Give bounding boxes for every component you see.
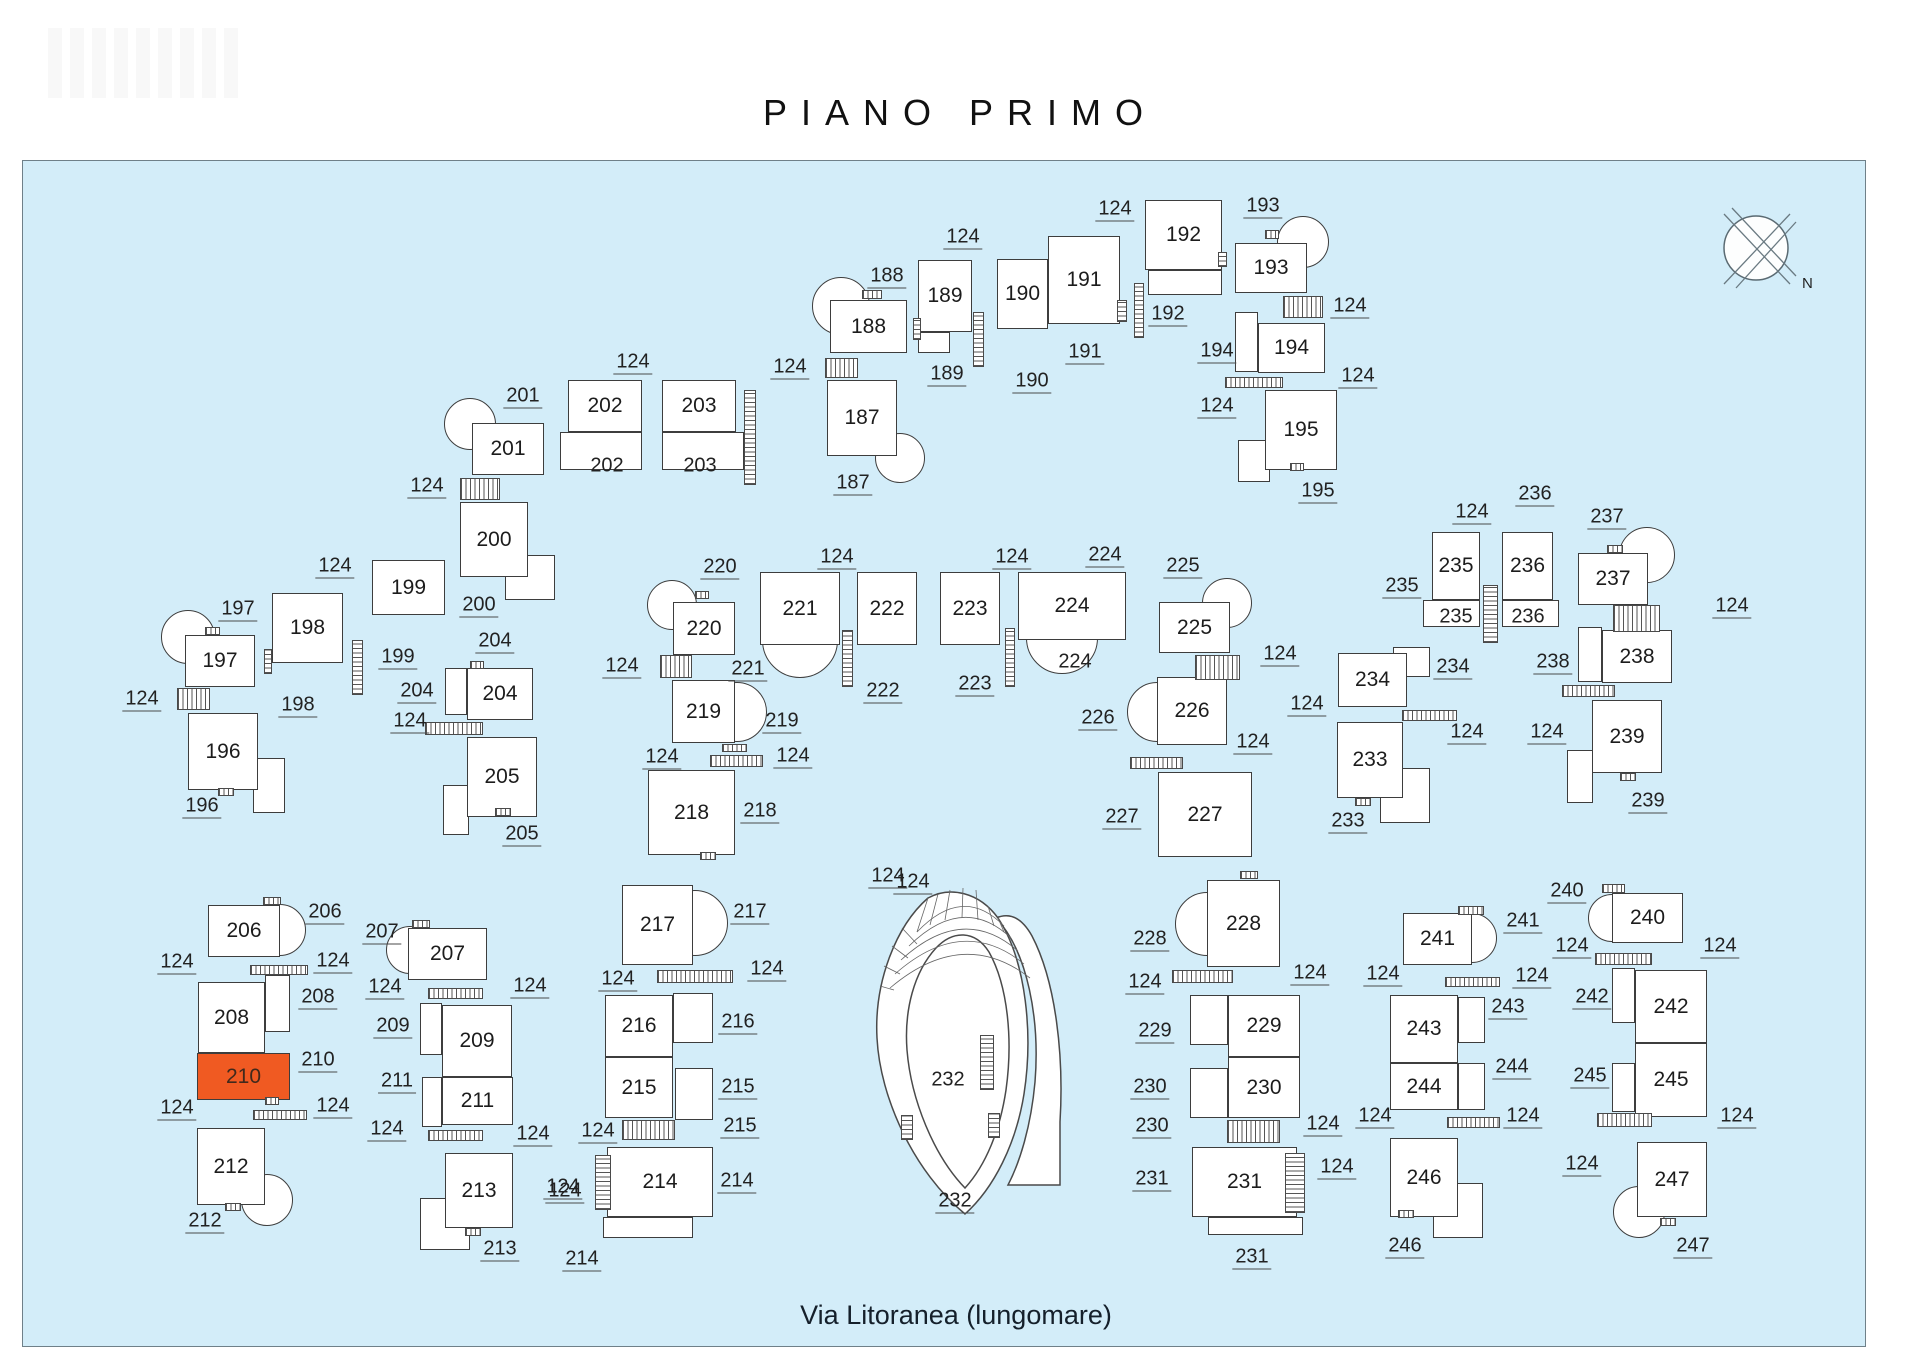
room-annex (673, 993, 713, 1043)
plan-label-124: 124 (1512, 966, 1551, 989)
unit-194[interactable]: 194 (1258, 323, 1325, 373)
stairs-hatch (1458, 906, 1484, 915)
unit-208[interactable]: 208 (198, 982, 265, 1053)
stairs-hatch (1398, 1210, 1414, 1218)
unit-number: 234 (1355, 668, 1390, 692)
unit-number: 224 (1054, 594, 1089, 618)
plan-label-244: 244 (1492, 1057, 1531, 1080)
unit-202[interactable]: 202 (568, 380, 642, 432)
room-annex (1612, 1063, 1635, 1112)
unit-241[interactable]: 241 (1403, 913, 1472, 965)
room-annex (422, 1077, 442, 1127)
plan-label-124: 124 (315, 556, 354, 579)
unit-246[interactable]: 246 (1390, 1138, 1458, 1217)
plan-label-124: 124 (598, 969, 637, 992)
plan-label-124: 124 (1712, 596, 1751, 619)
room-annex (1458, 997, 1485, 1043)
plan-label-213: 213 (480, 1239, 519, 1262)
plan-label-223: 223 (955, 674, 994, 697)
unit-number: 223 (952, 597, 987, 621)
unit-230[interactable]: 230 (1228, 1057, 1300, 1118)
unit-233[interactable]: 233 (1337, 722, 1403, 798)
unit-number: 238 (1619, 645, 1654, 669)
stairs-hatch (988, 1113, 1000, 1138)
stairs-hatch (428, 1130, 483, 1141)
unit-213[interactable]: 213 (445, 1153, 513, 1228)
room-annex (1578, 627, 1602, 682)
stairs-hatch (1562, 685, 1615, 697)
unit-number: 187 (844, 406, 879, 430)
unit-number: 217 (640, 913, 675, 937)
unit-196[interactable]: 196 (188, 713, 258, 790)
stairs-hatch (205, 627, 220, 635)
plan-label-198: 198 (278, 695, 317, 718)
plan-label-124: 124 (992, 547, 1031, 570)
room-annex (445, 668, 467, 715)
stairs-hatch (695, 591, 709, 599)
room-annex (265, 975, 290, 1032)
unit-189[interactable]: 189 (918, 260, 972, 332)
plan-label-238: 238 (1533, 652, 1572, 675)
unit-247[interactable]: 247 (1637, 1142, 1707, 1217)
plan-label-231: 231 (1232, 1247, 1271, 1270)
plan-label-210: 210 (298, 1050, 337, 1073)
plan-label-195: 195 (1298, 481, 1337, 504)
plan-label-230: 230 (1130, 1077, 1169, 1100)
unit-224[interactable]: 224 (1018, 572, 1126, 640)
unit-number: 235 (1438, 554, 1473, 578)
unit-205[interactable]: 205 (467, 737, 537, 817)
plan-label-194: 194 (1197, 341, 1236, 364)
stairs-hatch (825, 358, 858, 378)
plan-label-124: 124 (407, 476, 446, 499)
unit-225[interactable]: 225 (1159, 602, 1230, 653)
plan-label-124: 124 (1717, 1106, 1756, 1129)
unit-204[interactable]: 204 (467, 668, 533, 720)
unit-219[interactable]: 219 (672, 680, 735, 743)
room-annex (1458, 1063, 1485, 1110)
plan-label-124: 124 (390, 711, 429, 734)
plan-label-232: 232 (931, 1070, 964, 1091)
stairs-hatch (1602, 884, 1625, 893)
compass-north-label: N (1802, 275, 1813, 292)
unit-206[interactable]: 206 (208, 905, 280, 957)
unit-number: 211 (461, 1089, 494, 1113)
plan-label-231: 231 (1132, 1169, 1171, 1192)
plan-label-215: 215 (718, 1077, 757, 1100)
unit-214[interactable]: 214 (607, 1147, 713, 1217)
stairs-hatch (253, 1110, 307, 1120)
plan-label-207: 207 (362, 922, 401, 945)
stairs-hatch (1117, 300, 1127, 322)
stairs-hatch (1595, 953, 1652, 965)
plan-label-124: 124 (1562, 1154, 1601, 1177)
stairs-hatch (1447, 1117, 1500, 1128)
plan-label-124: 124 (1452, 502, 1491, 525)
unit-number: 188 (851, 315, 886, 339)
unit-number: 226 (1174, 699, 1209, 723)
plan-label-245: 245 (1570, 1066, 1609, 1089)
plan-label-200: 200 (459, 595, 498, 618)
plan-label-209: 209 (373, 1016, 412, 1039)
unit-229[interactable]: 229 (1228, 995, 1300, 1057)
plan-label-215: 215 (720, 1116, 759, 1139)
stairs-hatch (352, 640, 363, 695)
plan-label-196: 196 (182, 796, 221, 819)
plan-label-188: 188 (867, 266, 906, 289)
unit-243[interactable]: 243 (1390, 995, 1458, 1063)
unit-number: 220 (686, 617, 721, 641)
unit-222[interactable]: 222 (857, 572, 917, 645)
stairs-hatch (1597, 1113, 1652, 1127)
plan-label-235: 235 (1382, 576, 1421, 599)
plan-label-206: 206 (305, 902, 344, 925)
stairs-hatch (1225, 377, 1283, 388)
plan-label-124: 124 (1197, 396, 1236, 419)
stairs-hatch (1240, 871, 1258, 879)
stairs-hatch (1227, 1120, 1280, 1143)
stairs-hatch (1172, 970, 1233, 983)
stairs-hatch (980, 1035, 994, 1090)
unit-number: 246 (1406, 1166, 1441, 1190)
unit-number: 189 (927, 284, 962, 308)
stairs-hatch (660, 655, 692, 678)
plan-label-124: 124 (1338, 366, 1377, 389)
unit-number: 242 (1653, 995, 1688, 1019)
unit-235[interactable]: 235 (1432, 532, 1480, 600)
plan-label-243: 243 (1488, 997, 1527, 1020)
unit-number: 227 (1187, 803, 1222, 827)
stairs-hatch (1005, 628, 1015, 687)
plan-label-220: 220 (700, 557, 739, 580)
unit-221[interactable]: 221 (760, 572, 840, 645)
plan-label-217: 217 (730, 902, 769, 925)
stairs-hatch (263, 897, 281, 905)
plan-label-237: 237 (1587, 507, 1626, 530)
stairs-hatch (1355, 798, 1371, 806)
plan-label-235: 235 (1439, 607, 1472, 628)
plan-label-222: 222 (863, 681, 902, 704)
plan-label-199: 199 (378, 647, 417, 670)
unit-197[interactable]: 197 (185, 635, 255, 687)
unit-201[interactable]: 201 (472, 423, 544, 475)
unit-number: 207 (430, 942, 465, 966)
room-annex (918, 332, 950, 353)
unit-191[interactable]: 191 (1048, 236, 1120, 324)
unit-209[interactable]: 209 (442, 1005, 512, 1077)
unit-198[interactable]: 198 (272, 593, 343, 663)
unit-195[interactable]: 195 (1265, 390, 1337, 470)
unit-210[interactable]: 210 (197, 1053, 290, 1100)
room-annex (1208, 1217, 1303, 1235)
plan-label-224: 224 (1085, 545, 1124, 568)
plan-label-124: 124 (578, 1121, 617, 1144)
plan-label-124: 124 (1700, 936, 1739, 959)
stairs-hatch (1483, 585, 1498, 643)
unit-number: 198 (290, 616, 325, 640)
unit-number: 240 (1630, 906, 1665, 930)
plan-label-205: 205 (502, 824, 541, 847)
plan-label-124: 124 (613, 352, 652, 375)
plan-label-227: 227 (1102, 807, 1141, 830)
stairs-hatch (1218, 252, 1227, 267)
stairs-hatch (700, 852, 716, 860)
stairs-hatch (177, 688, 210, 710)
room-annex (1190, 995, 1228, 1045)
stairs-hatch (1402, 710, 1457, 721)
stairs-hatch (412, 920, 430, 928)
unit-228[interactable]: 228 (1207, 880, 1280, 967)
plan-label-201: 201 (503, 386, 542, 409)
unit-number: 213 (461, 1179, 496, 1203)
unit-number: 197 (202, 649, 237, 673)
stairs-hatch (460, 478, 500, 500)
unit-215[interactable]: 215 (605, 1057, 673, 1118)
plan-label-124: 124 (513, 1124, 552, 1147)
unit-number: 208 (214, 1006, 249, 1030)
plan-label-124: 124 (1330, 296, 1369, 319)
unit-217[interactable]: 217 (622, 885, 693, 965)
plan-label-216: 216 (718, 1012, 757, 1035)
plan-label-124: 124 (893, 872, 932, 895)
unit-number: 205 (484, 765, 519, 789)
plan-label-124: 124 (367, 1119, 406, 1142)
plan-label-124: 124 (157, 952, 196, 975)
unit-number: 243 (1406, 1017, 1441, 1041)
floor-plan-page: PIANO PRIMO 2012002022031881871891901911… (0, 0, 1920, 1358)
stairs-hatch (1290, 463, 1304, 471)
plan-label-242: 242 (1572, 987, 1611, 1010)
plan-label-239: 239 (1628, 791, 1667, 814)
plan-label-124: 124 (1303, 1114, 1342, 1137)
plan-label-124: 124 (1527, 722, 1566, 745)
stairs-hatch (913, 318, 921, 340)
stairs-hatch (1660, 1218, 1676, 1226)
stairs-hatch (722, 744, 747, 752)
unit-212[interactable]: 212 (197, 1128, 265, 1205)
unit-number: 192 (1166, 223, 1201, 247)
unit-220[interactable]: 220 (673, 602, 735, 655)
unit-number: 233 (1352, 748, 1387, 772)
unit-234[interactable]: 234 (1338, 653, 1407, 707)
plan-label-232: 232 (935, 1191, 974, 1214)
unit-number: 200 (476, 528, 511, 552)
plan-label-124: 124 (313, 951, 352, 974)
unit-245[interactable]: 245 (1635, 1043, 1707, 1117)
stairs-hatch (1613, 605, 1660, 632)
unit-242[interactable]: 242 (1635, 970, 1707, 1043)
unit-number: 222 (869, 597, 904, 621)
stairs-hatch (744, 390, 756, 485)
unit-number: 239 (1609, 725, 1644, 749)
plan-label-124: 124 (1095, 199, 1134, 222)
plan-label-124: 124 (747, 959, 786, 982)
room-annex (1567, 750, 1593, 803)
unit-188[interactable]: 188 (830, 300, 907, 353)
room-annex (1148, 270, 1222, 295)
stairs-hatch (465, 1228, 481, 1236)
plan-label-211: 211 (378, 1071, 416, 1094)
stairs-hatch (495, 808, 511, 816)
plan-label-224: 224 (1058, 652, 1091, 673)
unit-number: 245 (1653, 1068, 1688, 1092)
unit-number: 209 (459, 1029, 494, 1053)
plan-label-202: 202 (590, 456, 623, 477)
unit-number: 215 (621, 1076, 656, 1100)
unit-number: 196 (205, 740, 240, 764)
unit-number: 201 (490, 437, 525, 461)
unit-227[interactable]: 227 (1158, 772, 1252, 857)
unit-187[interactable]: 187 (827, 380, 897, 456)
room-annex (675, 1068, 713, 1120)
stairs-hatch (710, 755, 763, 767)
unit-216[interactable]: 216 (605, 995, 673, 1057)
unit-number: 193 (1253, 256, 1288, 280)
unit-190[interactable]: 190 (997, 259, 1048, 329)
plan-label-225: 225 (1163, 556, 1202, 579)
plan-label-241: 241 (1503, 911, 1542, 934)
stairs-hatch (657, 970, 733, 983)
stairs-hatch (862, 290, 882, 299)
unit-244[interactable]: 244 (1390, 1063, 1458, 1110)
unit-211[interactable]: 211 (442, 1077, 513, 1125)
unit-number: 219 (686, 700, 721, 724)
unit-number: 221 (782, 597, 817, 621)
plan-label-124: 124 (1125, 972, 1164, 995)
stairs-hatch (1285, 1153, 1305, 1213)
unit-236[interactable]: 236 (1502, 532, 1553, 600)
plan-label-124: 124 (1233, 732, 1272, 755)
stairs-hatch (622, 1120, 675, 1140)
plan-label-124: 124 (1503, 1106, 1542, 1129)
plan-label-124: 124 (510, 976, 549, 999)
stairs-hatch (1195, 655, 1240, 680)
unit-231[interactable]: 231 (1192, 1147, 1297, 1217)
plan-label-240: 240 (1547, 881, 1586, 904)
plan-label-124: 124 (773, 746, 812, 769)
unit-number: 195 (1283, 418, 1318, 442)
unit-223[interactable]: 223 (940, 572, 1000, 645)
plan-label-124: 124 (365, 977, 404, 1000)
plan-label-187: 187 (833, 473, 872, 496)
stairs-hatch (1134, 283, 1144, 338)
plan-label-233: 233 (1328, 811, 1367, 834)
stairs-hatch (225, 1203, 241, 1211)
plan-label-247: 247 (1673, 1236, 1712, 1259)
plan-label-124: 124 (1317, 1157, 1356, 1180)
unit-number: 231 (1227, 1170, 1262, 1194)
unit-226[interactable]: 226 (1157, 677, 1227, 745)
unit-239[interactable]: 239 (1592, 700, 1662, 773)
stairs-hatch (428, 988, 483, 999)
plan-label-204: 204 (475, 631, 514, 654)
plan-label-218: 218 (740, 801, 779, 824)
plan-label-124: 124 (313, 1096, 352, 1119)
unit-number: 212 (213, 1155, 248, 1179)
compass-rose: N (1706, 200, 1816, 300)
boat-outer-hull (877, 892, 1028, 1214)
unit-number: 210 (226, 1065, 261, 1089)
unit-number: 190 (1005, 282, 1040, 306)
room-annex (1190, 1068, 1228, 1118)
unit-number: 218 (674, 801, 709, 825)
stairs-hatch (265, 1097, 279, 1105)
room-annex (420, 1003, 442, 1055)
stairs-hatch (264, 649, 272, 674)
plan-label-124: 124 (817, 547, 856, 570)
unit-203[interactable]: 203 (662, 380, 736, 432)
unit-192[interactable]: 192 (1145, 200, 1222, 270)
plan-label-230: 230 (1132, 1116, 1171, 1139)
unit-number: 216 (621, 1014, 656, 1038)
plan-label-214: 214 (562, 1249, 601, 1272)
stairs-hatch (425, 722, 483, 735)
room-annex (443, 785, 469, 835)
stairs-hatch (901, 1115, 913, 1140)
plan-label-124: 124 (943, 227, 982, 250)
area-232-shape (868, 870, 1068, 1225)
unit-number: 202 (587, 394, 622, 418)
unit-193[interactable]: 193 (1235, 243, 1307, 293)
plan-label-234: 234 (1433, 657, 1472, 680)
stairs-hatch (973, 312, 984, 367)
plan-label-236: 236 (1515, 484, 1554, 507)
unit-number: 191 (1066, 268, 1101, 292)
plan-label-228: 228 (1130, 929, 1169, 952)
room-annex (1235, 312, 1258, 372)
plan-label-192: 192 (1148, 304, 1187, 327)
unit-number: 194 (1274, 336, 1309, 360)
stairs-hatch (250, 965, 308, 975)
plan-label-191: 191 (1065, 342, 1104, 365)
plan-label-124: 124 (1290, 963, 1329, 986)
plan-label-197: 197 (218, 599, 257, 622)
plan-label-226: 226 (1078, 708, 1117, 731)
unit-number: 199 (391, 576, 426, 600)
unit-number: 204 (482, 682, 517, 706)
unit-number: 230 (1246, 1076, 1281, 1100)
unit-199[interactable]: 199 (372, 560, 445, 615)
plan-label-219: 219 (762, 711, 801, 734)
stairs-hatch (1620, 773, 1636, 781)
plan-label-124: 124 (1447, 722, 1486, 745)
unit-237[interactable]: 237 (1578, 553, 1648, 605)
plan-label-124: 124 (122, 689, 161, 712)
room-annex (603, 1217, 693, 1238)
stairs-hatch (1265, 230, 1279, 239)
unit-238[interactable]: 238 (1602, 630, 1672, 683)
unit-218[interactable]: 218 (648, 770, 735, 855)
plan-label-190: 190 (1012, 371, 1051, 394)
plan-label-124: 124 (1287, 694, 1326, 717)
stairs-hatch (595, 1155, 611, 1210)
plan-label-236: 236 (1511, 607, 1544, 628)
unit-number: 225 (1177, 616, 1212, 640)
unit-240[interactable]: 240 (1612, 893, 1683, 943)
plan-label-246: 246 (1385, 1236, 1424, 1259)
plan-label-124: 124 (157, 1098, 196, 1121)
stairs-hatch (1445, 977, 1500, 987)
unit-number: 237 (1595, 567, 1630, 591)
room-annex (1612, 968, 1635, 1023)
unit-number: 241 (1420, 927, 1455, 951)
unit-number: 214 (642, 1170, 677, 1194)
plan-label-212: 212 (185, 1211, 224, 1234)
plan-label-208: 208 (298, 987, 337, 1010)
unit-200[interactable]: 200 (460, 502, 528, 577)
unit-207[interactable]: 207 (408, 928, 487, 980)
plan-label-204: 204 (397, 681, 436, 704)
